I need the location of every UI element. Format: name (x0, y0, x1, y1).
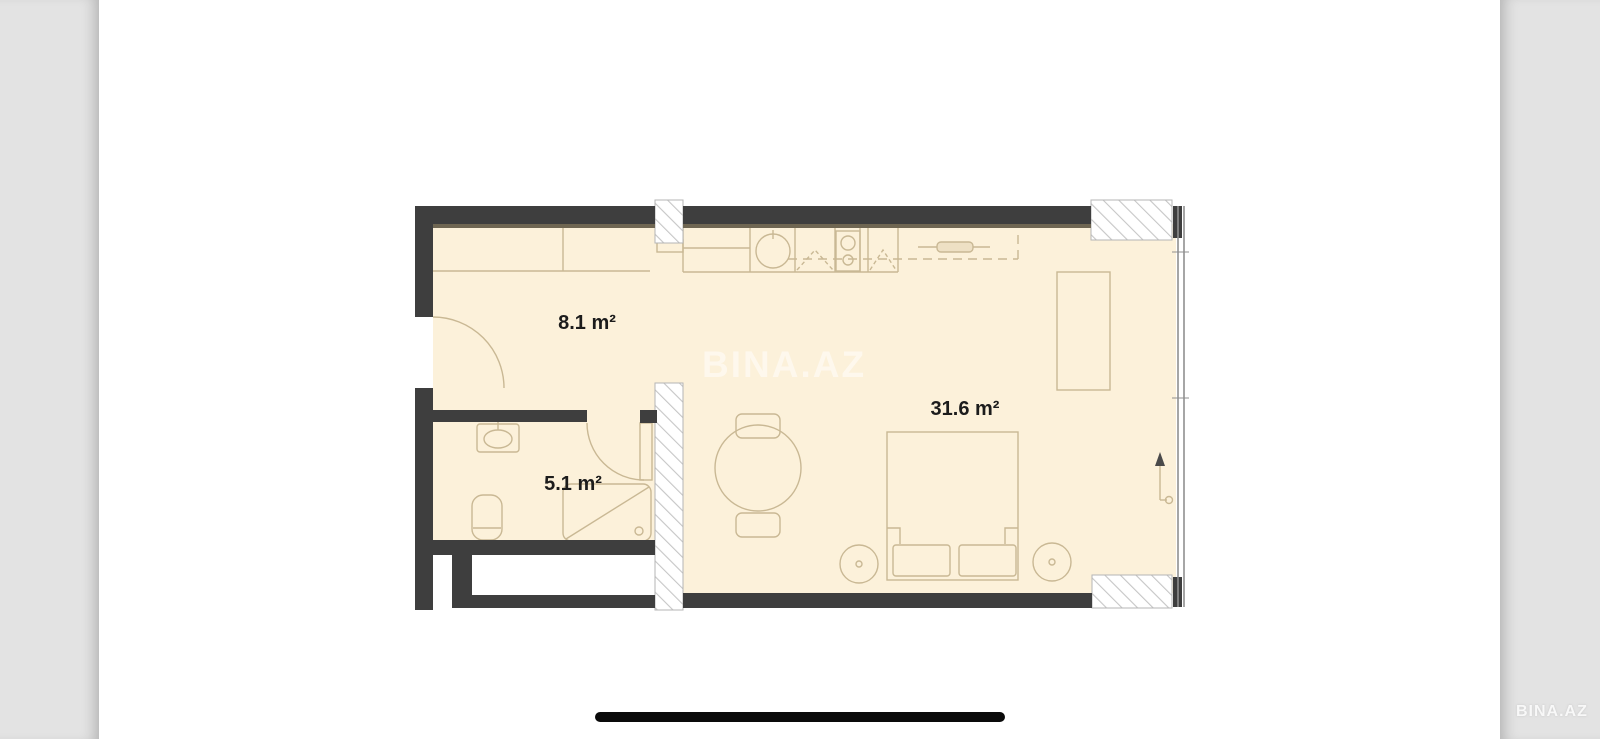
room-area-label-hall: 8.1 m² (558, 312, 616, 334)
wall-top-left (415, 206, 655, 224)
hatch-top-right (1091, 200, 1172, 240)
wall-bathroom-top (433, 410, 587, 422)
wall-living-bottom (683, 593, 1092, 608)
wall-top-right (683, 206, 1091, 224)
hatch-bottom-right (1092, 575, 1172, 608)
floor (433, 224, 1176, 593)
viewer-stage: 8.1 m² 5.1 m² 31.6 m² BINA.AZ BINA.AZ (0, 0, 1600, 739)
room-area-label-living: 31.6 m² (931, 398, 1000, 420)
room-area-label-bathroom: 5.1 m² (544, 473, 602, 495)
home-indicator[interactable] (595, 712, 1005, 722)
wall-left-upper (415, 206, 433, 317)
wall-notch-bottom (452, 595, 655, 608)
wall-bathroom-bottom (427, 540, 655, 555)
watermark: BINA.AZ (702, 344, 902, 386)
watermark-corner: BINA.AZ (1516, 703, 1588, 721)
hatch-column (655, 383, 683, 610)
hatch-top-middle (655, 200, 683, 243)
wall-bathroom-stub (640, 410, 657, 423)
wall-left-lower (415, 388, 433, 610)
